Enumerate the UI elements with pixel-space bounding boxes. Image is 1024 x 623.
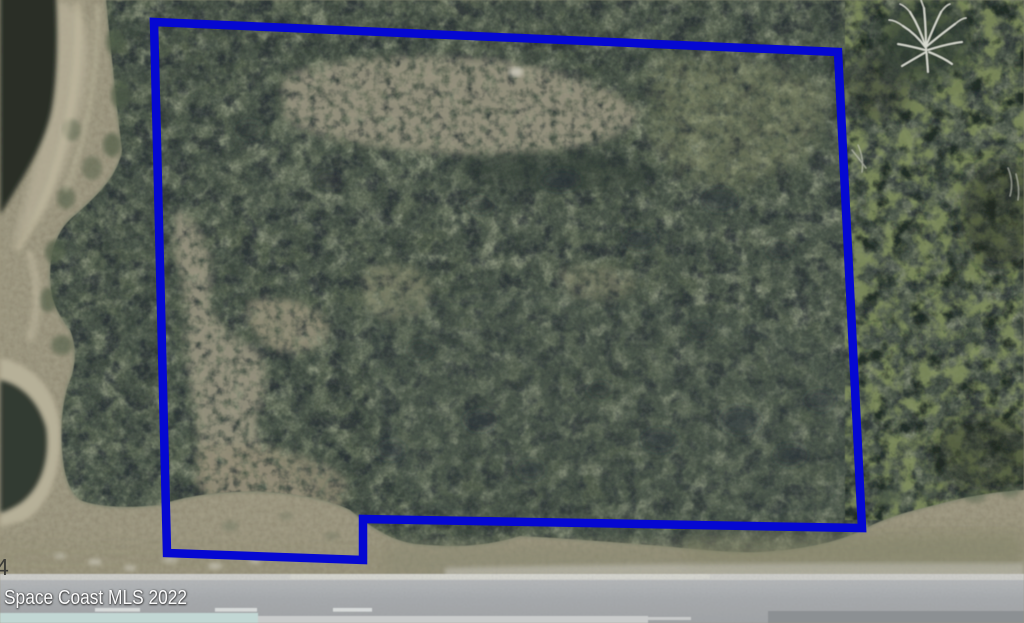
svg-text:Space Coast MLS 2022: Space Coast MLS 2022 (4, 587, 187, 609)
svg-text:4: 4 (0, 554, 9, 580)
